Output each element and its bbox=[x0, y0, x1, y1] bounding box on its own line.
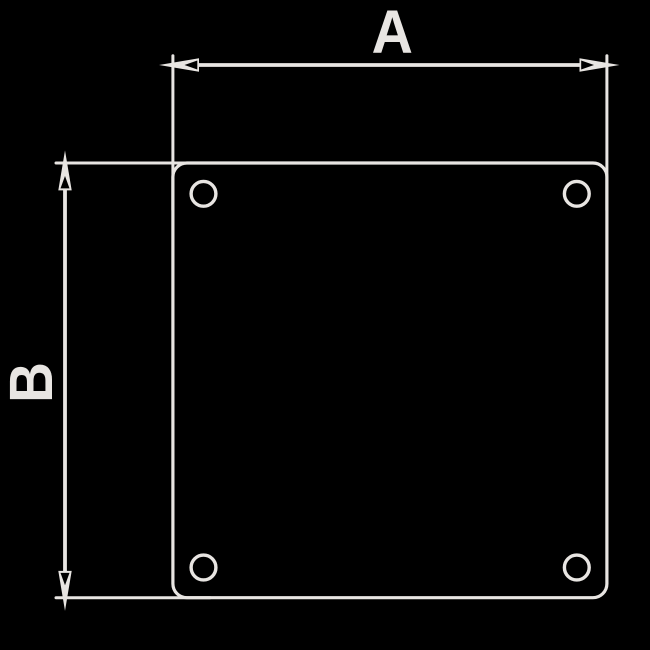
svg-text:A: A bbox=[372, 0, 413, 66]
svg-text:B: B bbox=[0, 362, 66, 403]
